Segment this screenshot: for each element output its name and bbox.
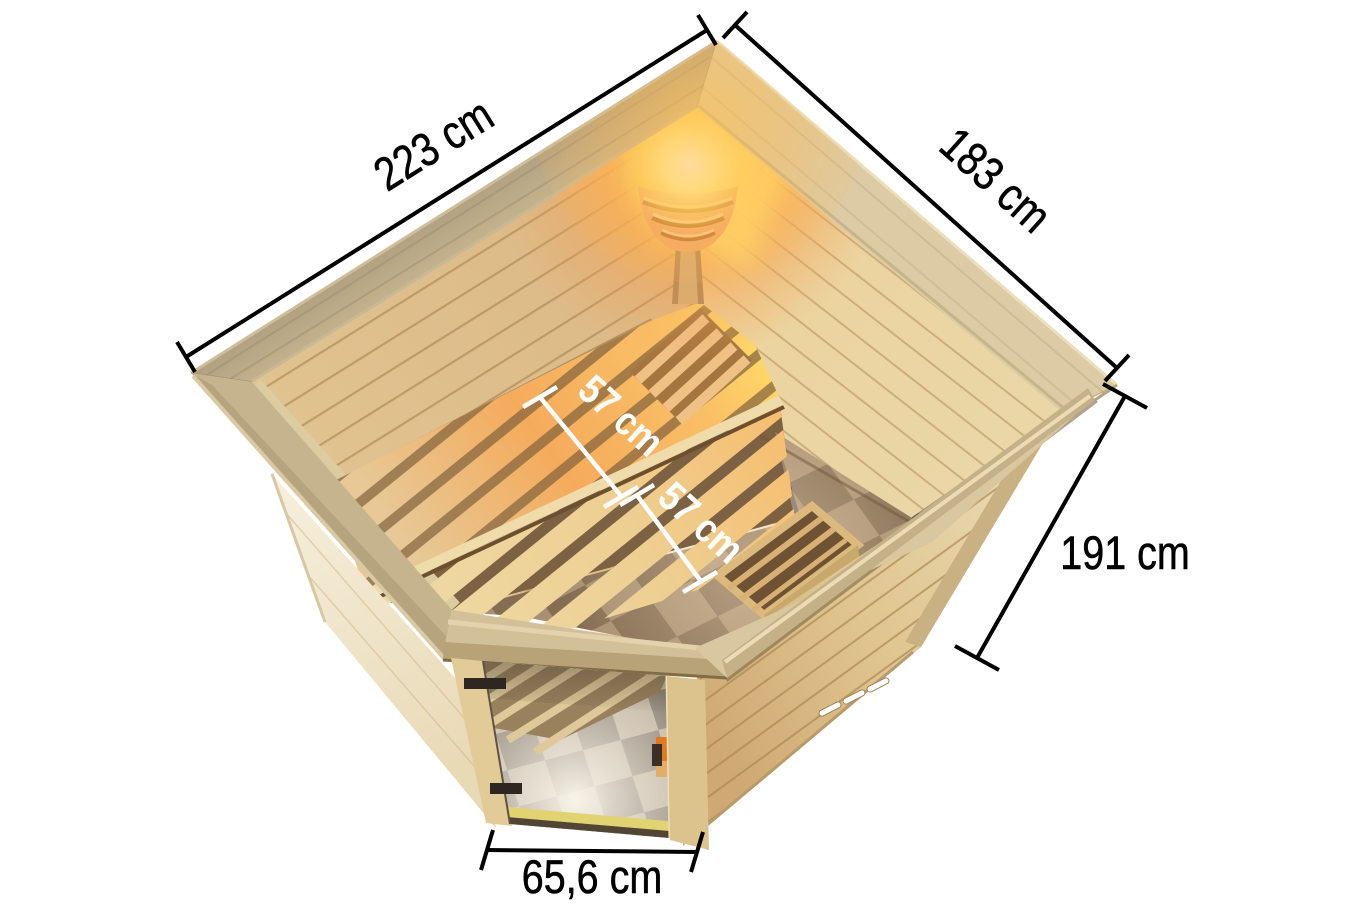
svg-text:191 cm: 191 cm: [1060, 528, 1189, 580]
svg-text:65,6 cm: 65,6 cm: [522, 852, 662, 904]
